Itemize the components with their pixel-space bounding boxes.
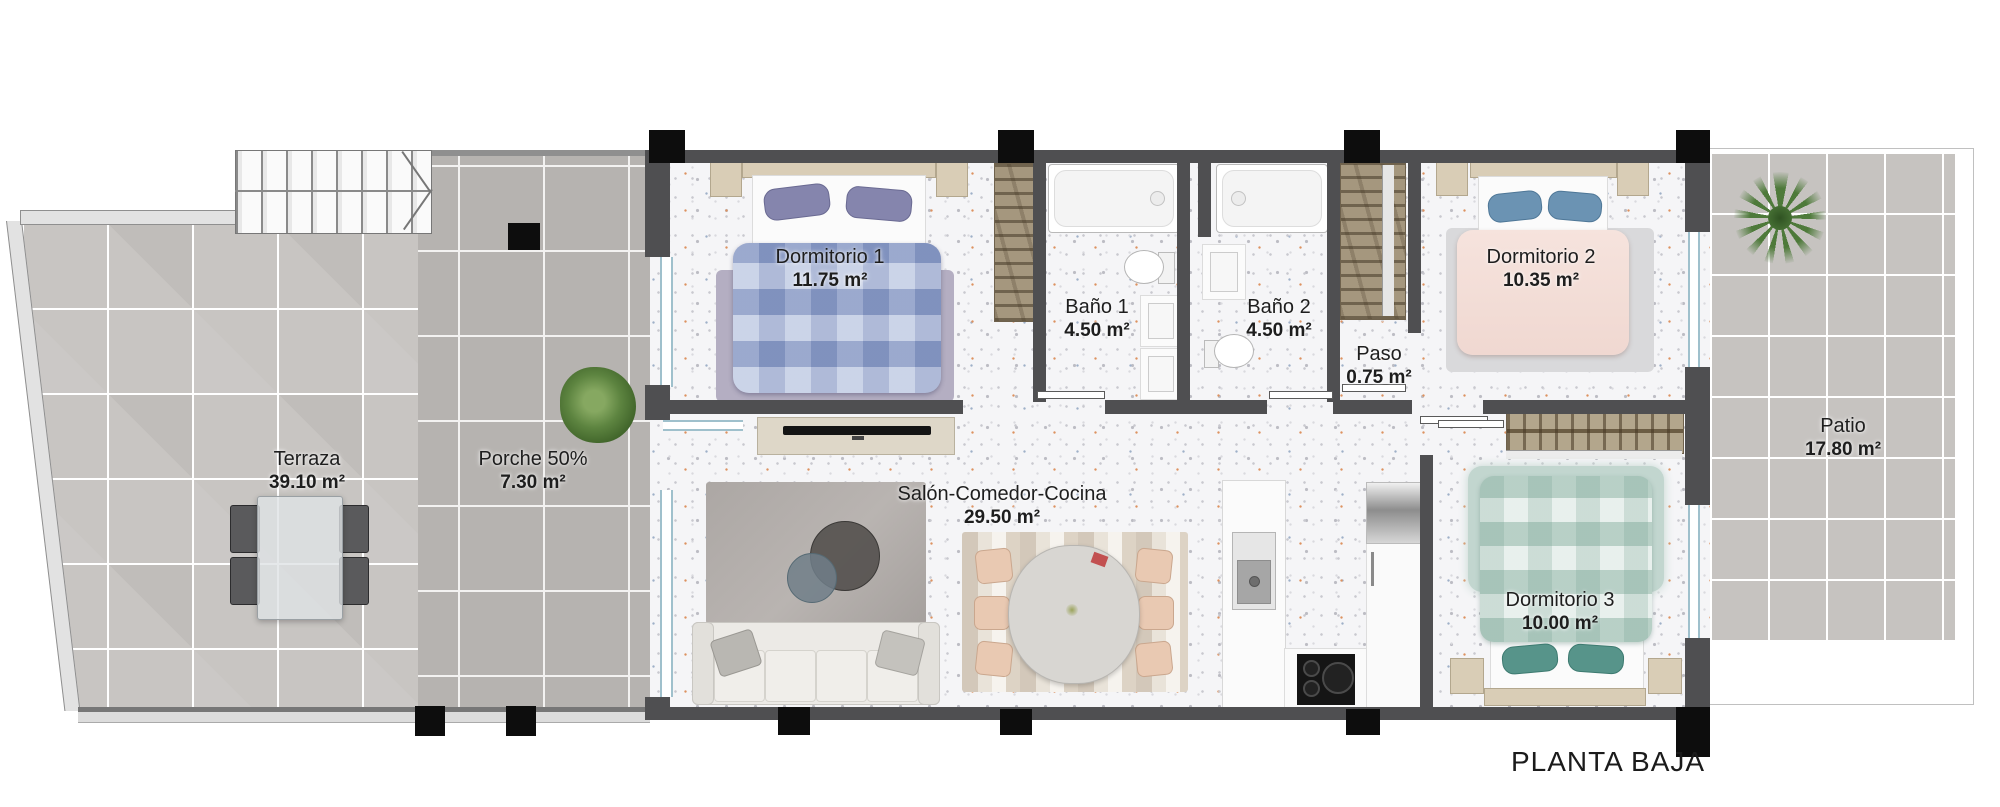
bedroom1-nightstand — [710, 162, 742, 197]
bedroom3-nightstand — [1450, 658, 1484, 694]
sliding-door — [663, 420, 743, 431]
room-label-paso: Paso 0.75 m² — [1346, 343, 1411, 389]
cooktop-burner — [1303, 680, 1320, 697]
bedroom3-headboard — [1484, 688, 1646, 706]
wall-living-bedroom3 — [1420, 455, 1433, 707]
counter-handle — [1371, 552, 1374, 586]
stairs — [235, 150, 432, 234]
room-area: 4.50 m² — [1246, 320, 1311, 342]
room-name: Salón-Comedor-Cocina — [898, 483, 1107, 507]
room-label-dormitorio-3: Dormitorio 3 10.00 m² — [1506, 589, 1615, 635]
terraza-floor — [22, 223, 418, 710]
door-bedroom3 — [1438, 420, 1504, 428]
bedroom3-wardrobe — [1506, 408, 1684, 454]
pillar — [508, 223, 540, 250]
wall-bathrooms-hall — [1105, 400, 1267, 414]
bedroom2-nightstand — [1436, 162, 1468, 196]
hallway-wardrobe-front — [1382, 165, 1394, 316]
room-name: Patio — [1805, 415, 1881, 439]
room-name: Dormitorio 3 — [1506, 589, 1615, 613]
terrace-chair — [339, 505, 369, 553]
door-bathroom2 — [1269, 391, 1333, 399]
tv-icon — [783, 426, 931, 435]
room-label-dormitorio-2: Dormitorio 2 10.35 m² — [1487, 246, 1596, 292]
dining-chair — [974, 547, 1013, 585]
bathroom1-bathtub — [1048, 164, 1180, 233]
terrace-chair — [339, 557, 369, 605]
dining-chair — [1134, 547, 1173, 585]
plan-title: PLANTA BAJA — [1511, 746, 1705, 778]
room-area: 4.50 m² — [1064, 320, 1129, 342]
room-label-dormitorio-1: Dormitorio 1 11.75 m² — [776, 246, 885, 292]
porche-top-edge — [418, 150, 650, 156]
pillar — [506, 706, 536, 736]
pillar — [1676, 130, 1710, 163]
bedroom1-wardrobe — [994, 163, 1035, 322]
stairs-mid-line — [235, 190, 430, 192]
room-area: 17.80 m² — [1805, 439, 1881, 461]
bush-plant-icon — [560, 367, 636, 443]
bathroom1-vanity-sink — [1140, 348, 1182, 400]
dining-chair — [1138, 596, 1174, 630]
bathroom1-toilet — [1124, 250, 1164, 284]
sofa-seat-cushion — [765, 650, 816, 702]
pillar — [1344, 130, 1380, 163]
room-name: Terraza — [269, 448, 345, 472]
wall-bedroom1-living — [670, 400, 963, 414]
terrace-table — [257, 496, 343, 620]
sofa-armrest — [692, 622, 714, 705]
bedroom3-pillow — [1501, 643, 1559, 676]
window — [1688, 232, 1700, 367]
room-area: 10.00 m² — [1506, 613, 1615, 635]
dining-chair — [974, 640, 1013, 678]
fridge — [1366, 482, 1422, 544]
kitchen-faucet-icon — [1249, 576, 1260, 587]
room-label-porche: Porche 50% 7.30 m² — [479, 448, 588, 494]
bedroom1-pillow — [845, 185, 914, 223]
wall-left — [645, 697, 670, 720]
wall-bathroom-partition — [1177, 162, 1190, 402]
bathroom2-sink — [1202, 244, 1246, 300]
wall-left — [645, 385, 670, 420]
room-name: Porche 50% — [479, 448, 588, 472]
bedroom3-pillow — [1567, 643, 1625, 675]
wall-left — [645, 150, 670, 257]
wall-right — [1685, 367, 1710, 505]
bedroom2-nightstand — [1617, 162, 1649, 196]
wall-paso-bedroom2 — [1408, 162, 1421, 333]
room-label-patio: Patio 17.80 m² — [1805, 415, 1881, 461]
room-area: 29.50 m² — [898, 507, 1107, 529]
terrace-chair — [230, 557, 260, 605]
room-area: 39.10 m² — [269, 472, 345, 494]
room-label-bano-2: Baño 2 4.50 m² — [1246, 296, 1311, 342]
outdoor-bottom-band — [78, 712, 650, 723]
room-area: 11.75 m² — [776, 270, 885, 292]
cooktop-burner — [1303, 660, 1320, 677]
bedroom1-nightstand — [936, 162, 968, 197]
pillar — [415, 706, 445, 736]
pillar — [1346, 709, 1380, 735]
dining-chair — [974, 596, 1010, 630]
wall-paso-hall — [1333, 400, 1412, 414]
coffee-table-small — [787, 553, 837, 603]
pillar — [998, 130, 1034, 163]
pillar — [1000, 709, 1032, 735]
room-name: Dormitorio 2 — [1487, 246, 1596, 270]
tv-stand — [852, 436, 864, 440]
window — [660, 490, 673, 697]
dining-table-centerpiece — [1066, 604, 1078, 616]
pillar — [778, 707, 810, 735]
cooktop-burner — [1322, 662, 1354, 694]
dining-chair — [1134, 640, 1173, 678]
sofa-armrest — [918, 622, 940, 705]
room-label-salon: Salón-Comedor-Cocina 29.50 m² — [898, 483, 1107, 529]
bedroom3-wardrobe-front — [1506, 450, 1682, 459]
room-name: Baño 1 — [1064, 296, 1129, 320]
bedroom2-pillow — [1547, 190, 1603, 224]
window — [1688, 505, 1700, 638]
pillar — [649, 130, 685, 163]
palm-tree-center — [1768, 206, 1792, 230]
terraza-boundary-top-wall — [20, 210, 238, 225]
window — [660, 257, 673, 387]
floorplan-canvas: Terraza 39.10 m² Porche 50% 7.30 m² Dorm… — [0, 0, 2000, 807]
bathroom2-bathtub — [1216, 164, 1328, 233]
room-label-terraza: Terraza 39.10 m² — [269, 448, 345, 494]
room-name: Paso — [1346, 343, 1411, 367]
terrace-chair — [230, 505, 260, 553]
bathroom1-vanity-sink — [1140, 295, 1182, 347]
room-label-bano-1: Baño 1 4.50 m² — [1064, 296, 1129, 342]
wall-bedroom2-hall — [1483, 400, 1687, 414]
hallway-wardrobe — [1340, 163, 1406, 320]
door-bathroom1 — [1037, 391, 1105, 399]
room-name: Dormitorio 1 — [776, 246, 885, 270]
room-area: 10.35 m² — [1487, 270, 1596, 292]
room-area: 7.30 m² — [479, 472, 588, 494]
sofa-seat-cushion — [816, 650, 867, 702]
room-area: 0.75 m² — [1346, 367, 1411, 389]
room-name: Baño 2 — [1246, 296, 1311, 320]
wall-bathroom2-paso — [1327, 162, 1340, 402]
bedroom3-nightstand — [1648, 658, 1682, 694]
wall-bedroom1-bathroom1 — [1033, 162, 1046, 402]
wall-bathroom-partition — [1198, 162, 1211, 237]
